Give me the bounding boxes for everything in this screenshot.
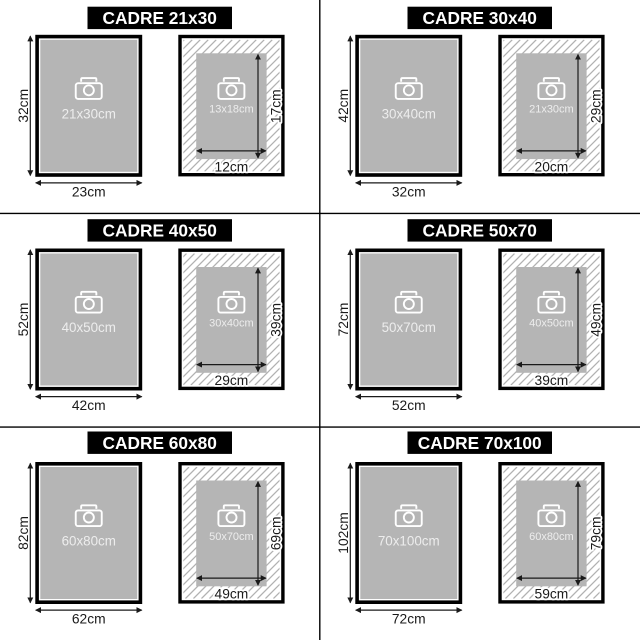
svg-text:42cm: 42cm (336, 89, 351, 123)
svg-text:CADRE 50x70: CADRE 50x70 (423, 221, 537, 241)
svg-text:69cm: 69cm (268, 517, 283, 551)
svg-text:12cm: 12cm (215, 159, 249, 174)
svg-text:72cm: 72cm (336, 303, 351, 337)
svg-text:79cm: 79cm (588, 517, 603, 551)
svg-text:29cm: 29cm (215, 373, 249, 388)
svg-text:17cm: 17cm (268, 89, 283, 123)
svg-text:49cm: 49cm (215, 587, 249, 602)
svg-text:40x50cm: 40x50cm (529, 317, 574, 329)
svg-text:21x30cm: 21x30cm (529, 104, 574, 116)
svg-text:52cm: 52cm (16, 303, 31, 337)
svg-text:60x80cm: 60x80cm (62, 534, 116, 549)
svg-text:30x40cm: 30x40cm (382, 106, 436, 121)
svg-text:49cm: 49cm (588, 303, 603, 337)
svg-text:29cm: 29cm (588, 89, 603, 123)
svg-text:39cm: 39cm (535, 373, 569, 388)
svg-text:32cm: 32cm (16, 89, 31, 123)
svg-text:62cm: 62cm (72, 612, 106, 627)
svg-text:13x18cm: 13x18cm (209, 104, 254, 116)
svg-text:CADRE 30x40: CADRE 30x40 (423, 8, 537, 28)
svg-text:39cm: 39cm (268, 303, 283, 337)
svg-text:CADRE 70x100: CADRE 70x100 (418, 433, 542, 453)
svg-text:50x70cm: 50x70cm (382, 320, 436, 335)
svg-text:60x80cm: 60x80cm (529, 531, 574, 543)
svg-text:20cm: 20cm (535, 159, 569, 174)
svg-text:52cm: 52cm (392, 398, 426, 413)
svg-text:82cm: 82cm (16, 516, 31, 550)
svg-text:CADRE 60x80: CADRE 60x80 (103, 433, 217, 453)
svg-text:21x30cm: 21x30cm (62, 106, 116, 121)
svg-text:102cm: 102cm (336, 512, 351, 553)
svg-text:23cm: 23cm (72, 184, 106, 199)
svg-text:CADRE 40x50: CADRE 40x50 (103, 221, 217, 241)
svg-text:40x50cm: 40x50cm (62, 320, 116, 335)
svg-text:30x40cm: 30x40cm (209, 317, 254, 329)
svg-text:59cm: 59cm (535, 587, 569, 602)
svg-text:72cm: 72cm (392, 612, 426, 627)
svg-text:50x70cm: 50x70cm (209, 531, 254, 543)
svg-text:70x100cm: 70x100cm (378, 534, 440, 549)
svg-text:CADRE 21x30: CADRE 21x30 (103, 8, 217, 28)
svg-text:42cm: 42cm (72, 398, 106, 413)
svg-text:32cm: 32cm (392, 184, 426, 199)
